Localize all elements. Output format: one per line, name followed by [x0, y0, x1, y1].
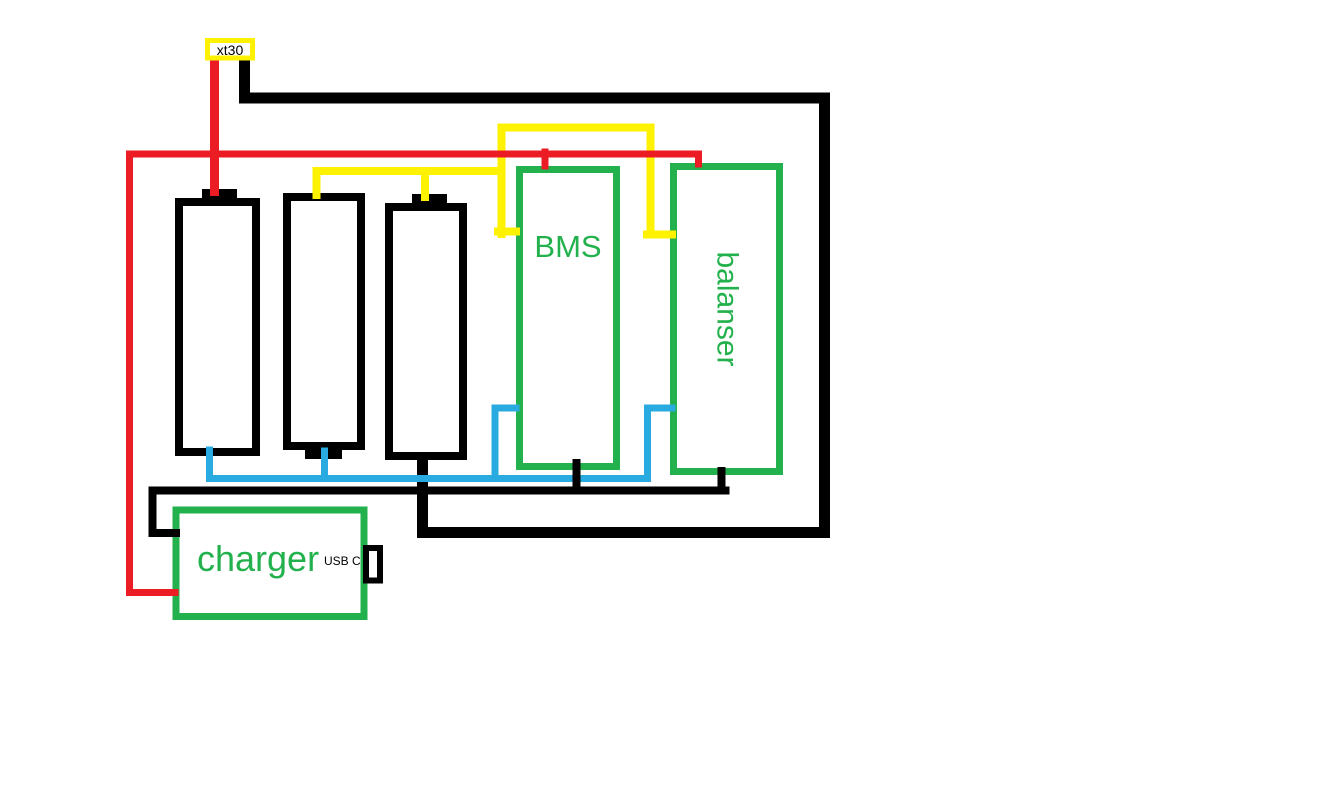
battery-cell-1: [179, 202, 256, 452]
battery-cell-1-terminal: [202, 189, 237, 199]
wire-blue-bms-branch: [495, 408, 516, 479]
battery-cell-2: [287, 197, 361, 446]
usb-c-port: [366, 548, 380, 581]
wiring-svg: [0, 0, 1341, 807]
xt30-label: xt30: [205, 40, 255, 60]
battery-cell-3-terminal: [412, 194, 447, 204]
battery-cell-3: [389, 207, 463, 456]
diagram-canvas: xt30 BMS balanser charger USB C: [0, 0, 1341, 807]
balancer-label: balanser: [710, 242, 744, 377]
bms-label: BMS: [516, 229, 620, 265]
bms-box: [520, 170, 617, 467]
charger-label: charger: [197, 538, 319, 580]
usb-c-label: USB C: [324, 554, 361, 568]
wire-yellow-cell2-stub: [317, 171, 502, 195]
